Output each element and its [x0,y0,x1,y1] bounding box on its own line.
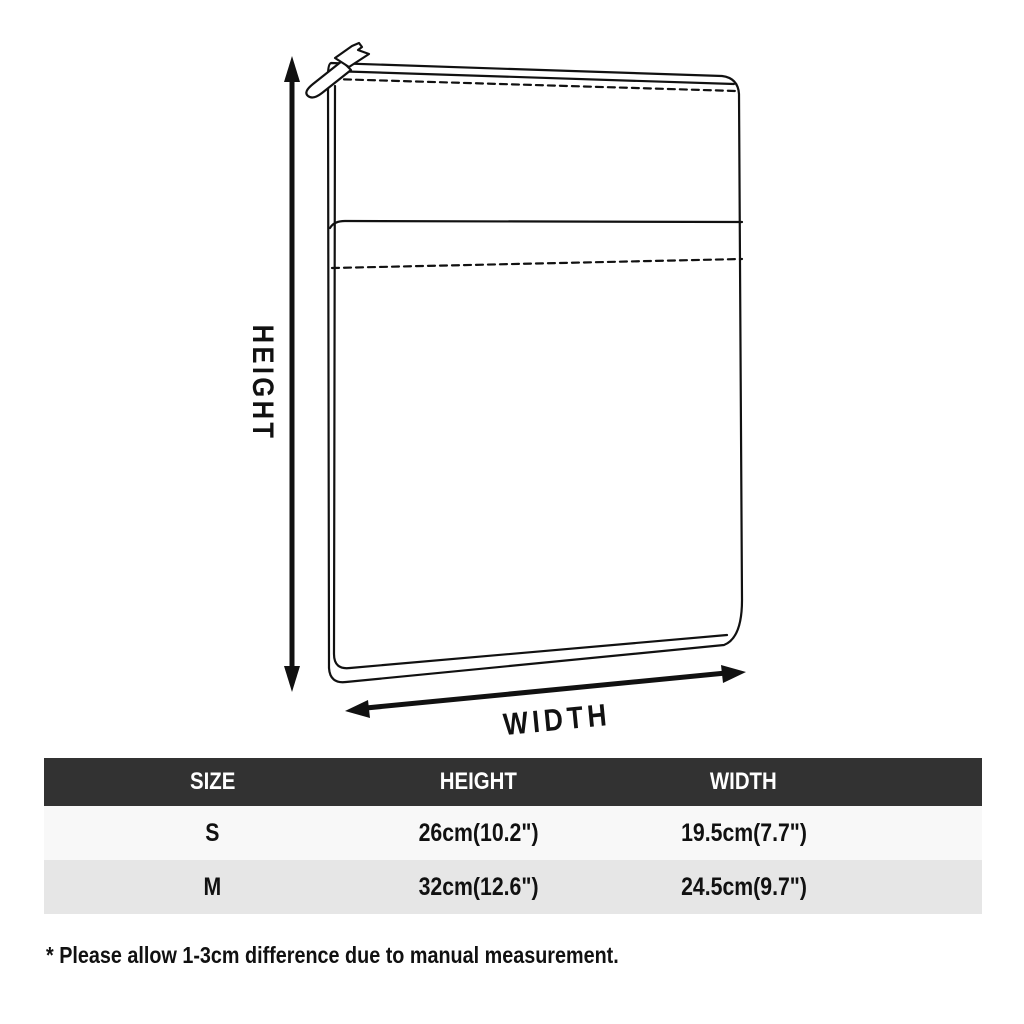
arrow-left-head [345,700,370,718]
arrow-right-head [721,665,746,683]
arrow-up-head [284,56,300,82]
header-height-text: HEIGHT [440,768,517,796]
sleeve-pocket-edge [330,221,742,228]
table-row-size-s: S 26cm(10.2") 19.5cm(7.7") [44,806,982,860]
sleeve-diagram [0,0,1024,750]
height-arrow [284,56,300,692]
sleeve-top-seam [331,71,734,84]
header-height: HEIGHT [346,768,611,796]
cell-size-text: M [204,873,222,902]
sleeve-inner-seam [334,86,727,668]
measurement-disclaimer-text: * Please allow 1-3cm difference due to m… [46,942,619,969]
cell-size-text: S [206,819,220,848]
cell-height-text: 26cm(10.2") [418,819,538,848]
cell-width-text: 19.5cm(7.7") [681,819,807,848]
cell-width: 19.5cm(7.7") [611,819,876,848]
cell-height: 26cm(10.2") [346,819,611,848]
header-size: SIZE [80,768,345,796]
height-dimension-text: HEIGHT [245,325,279,442]
size-table-header-row: SIZE HEIGHT WIDTH [44,758,982,806]
width-dimension-text: WIDTH [502,697,613,743]
arrow-down-head [284,666,300,692]
header-width: WIDTH [611,768,876,796]
zipper-slider [335,43,369,67]
height-dimension-label: HEIGHT [245,314,279,451]
sleeve-outline [328,63,742,682]
width-dimension-label: WIDTH [492,696,621,744]
cell-size: M [80,873,345,902]
sleeve-top-stitch [332,79,736,91]
size-chart-page: HEIGHT WIDTH SIZE HEIGHT WIDTH S 26cm(10… [0,0,1024,1024]
measurement-disclaimer: * Please allow 1-3cm difference due to m… [46,942,712,969]
header-size-text: SIZE [190,768,235,796]
size-table: SIZE HEIGHT WIDTH S 26cm(10.2") 19.5cm(7… [44,758,982,914]
zipper-pull-tab [306,61,351,97]
cell-height-text: 32cm(12.6") [418,873,538,902]
cell-size: S [80,819,345,848]
table-row-size-m: M 32cm(12.6") 24.5cm(9.7") [44,860,982,914]
cell-height: 32cm(12.6") [346,873,611,902]
sleeve-pocket-stitch [332,259,742,268]
cell-width-text: 24.5cm(9.7") [681,873,807,902]
header-width-text: WIDTH [710,768,777,796]
cell-width: 24.5cm(9.7") [611,873,876,902]
